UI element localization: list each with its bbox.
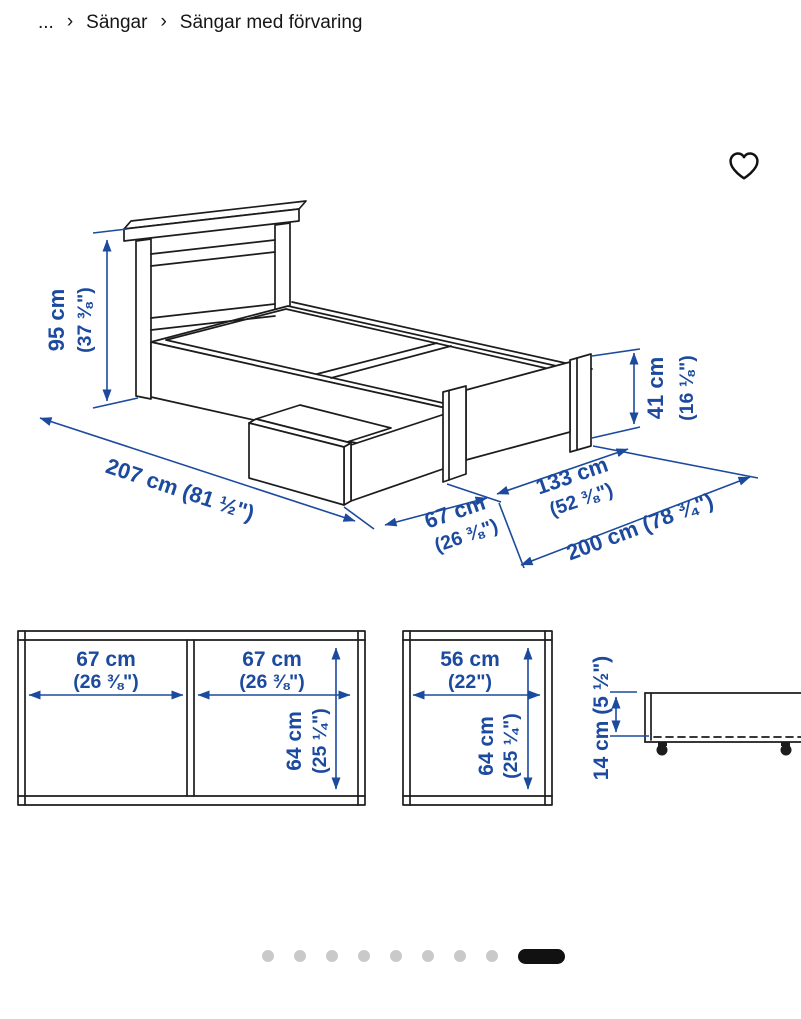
pagination-dot[interactable] (262, 950, 274, 962)
dim-foot-height-inch: (16 ⅛") (676, 355, 698, 421)
side-height-label: 14 cm (5 ½") (590, 656, 613, 780)
drawer-left-inch: (26 ⅜") (73, 671, 139, 693)
single-depth-cm: 64 cm (475, 716, 498, 776)
pagination-dot[interactable] (454, 950, 466, 962)
pagination-dot[interactable] (486, 950, 498, 962)
drawer-left-cm: 67 cm (76, 648, 136, 671)
drawer-single-top-view-diagram: 56 cm (22") 64 cm (25 ¼") (403, 631, 552, 805)
drawers-top-view-diagram: 67 cm (26 ⅜") 67 cm (26 ⅜") 64 cm (25 ¼"… (18, 631, 365, 805)
single-depth-inch: (25 ¼") (500, 713, 522, 779)
drawer-depth-inch: (25 ¼") (309, 708, 331, 774)
pagination-dot-active[interactable] (518, 949, 565, 964)
pagination-dot[interactable] (390, 950, 402, 962)
dim-foot-height-cm: 41 cm (643, 357, 668, 419)
single-width-cm: 56 cm (440, 648, 500, 671)
product-image-viewer: ... › Sängar › Sängar med förvaring (0, 0, 801, 1019)
dim-height-inch: (37 ⅜") (74, 287, 96, 353)
single-width-inch: (22") (448, 671, 492, 693)
drawer-side-view-diagram: 14 cm (5 ½") (590, 656, 801, 780)
caster-wheel-icon (781, 745, 792, 756)
pagination-dot[interactable] (326, 950, 338, 962)
bed-isometric-drawing (124, 201, 592, 505)
dim-height-cm: 95 cm (44, 289, 69, 351)
drawer-right-cm: 67 cm (242, 648, 302, 671)
dimension-drawing: 95 cm (37 ⅜") 207 cm (81 ½") 41 cm (16 ⅛… (0, 0, 801, 1019)
image-pagination (262, 947, 565, 965)
caster-wheel-icon (657, 745, 668, 756)
drawer-right-inch: (26 ⅜") (239, 671, 305, 693)
pagination-dot[interactable] (294, 950, 306, 962)
pagination-dot[interactable] (422, 950, 434, 962)
drawer-depth-cm: 64 cm (283, 711, 306, 771)
pagination-dot[interactable] (358, 950, 370, 962)
